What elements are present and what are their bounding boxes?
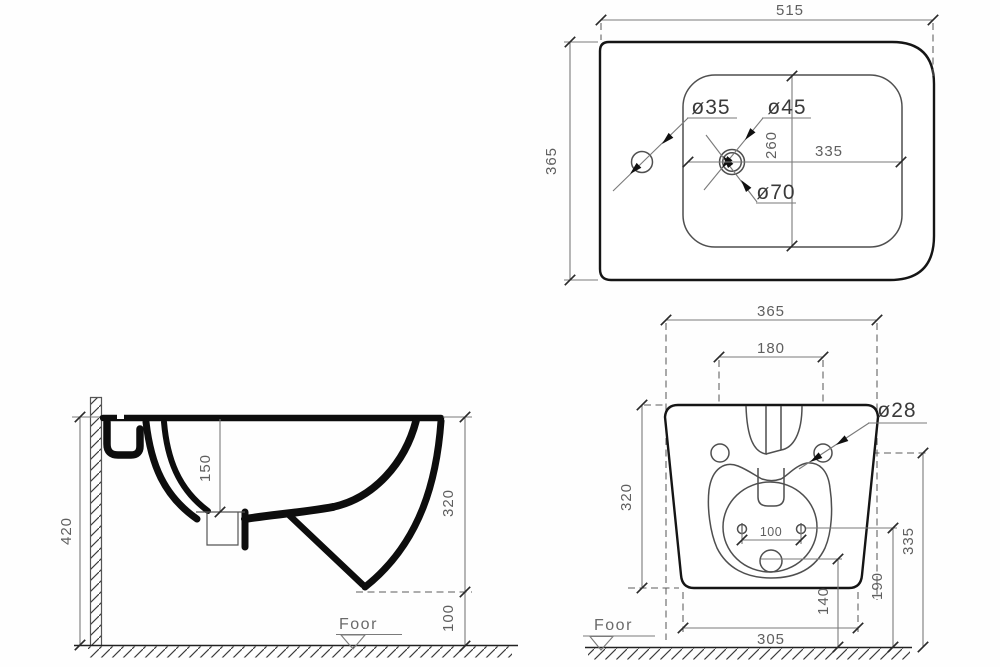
side-floor-hatch [88, 647, 512, 658]
front-dim-305: 305 [757, 631, 785, 648]
bidet-dimension-drawing: 515 365 335 260 ø35 ø45 ø70 [0, 0, 1000, 667]
front-floor-label: Foor [594, 617, 633, 634]
side-floor-symbol: Foor [336, 616, 402, 649]
side-dim-100: 100 [440, 604, 457, 632]
plan-dim-335: 335 [815, 143, 843, 160]
wall-hatch [91, 397, 101, 645]
side-dim-420: 420 [58, 517, 75, 545]
plan-callout-d70: ø70 [756, 181, 795, 204]
front-dim-140: 140 [815, 587, 832, 615]
front-dim-335: 335 [900, 527, 917, 555]
front-floor-hatch [588, 649, 910, 660]
plan-dim-width: 515 [776, 2, 804, 19]
plan-callout-d45: ø45 [767, 96, 806, 119]
plan-view: 515 365 335 260 ø35 ø45 ø70 [543, 2, 938, 285]
front-dim-190: 190 [869, 572, 886, 600]
side-body-section [103, 413, 441, 587]
front-body-outline [665, 405, 878, 588]
front-floor-symbol: Foor [583, 617, 655, 650]
front-dim-100: 100 [760, 525, 782, 539]
front-dim-180: 180 [757, 340, 785, 357]
front-dim-320: 320 [618, 483, 635, 511]
front-dim-365: 365 [757, 303, 785, 320]
side-dim-320: 320 [440, 489, 457, 517]
side-dim-150: 150 [197, 454, 214, 482]
plan-dim-depth: 365 [543, 147, 560, 175]
front-callout-d28: ø28 [877, 399, 916, 422]
side-view: 420 150 320 100 Foor [58, 397, 518, 658]
plan-callout-d35: ø35 [691, 96, 730, 119]
front-view: 365 180 320 335 190 140 100 305 ø28 Foor [583, 303, 928, 660]
side-floor-label: Foor [339, 616, 378, 633]
drain-opening [196, 512, 245, 545]
technical-drawing-sheet: 515 365 335 260 ø35 ø45 ø70 [0, 0, 1000, 667]
plan-dim-260: 260 [763, 131, 780, 159]
